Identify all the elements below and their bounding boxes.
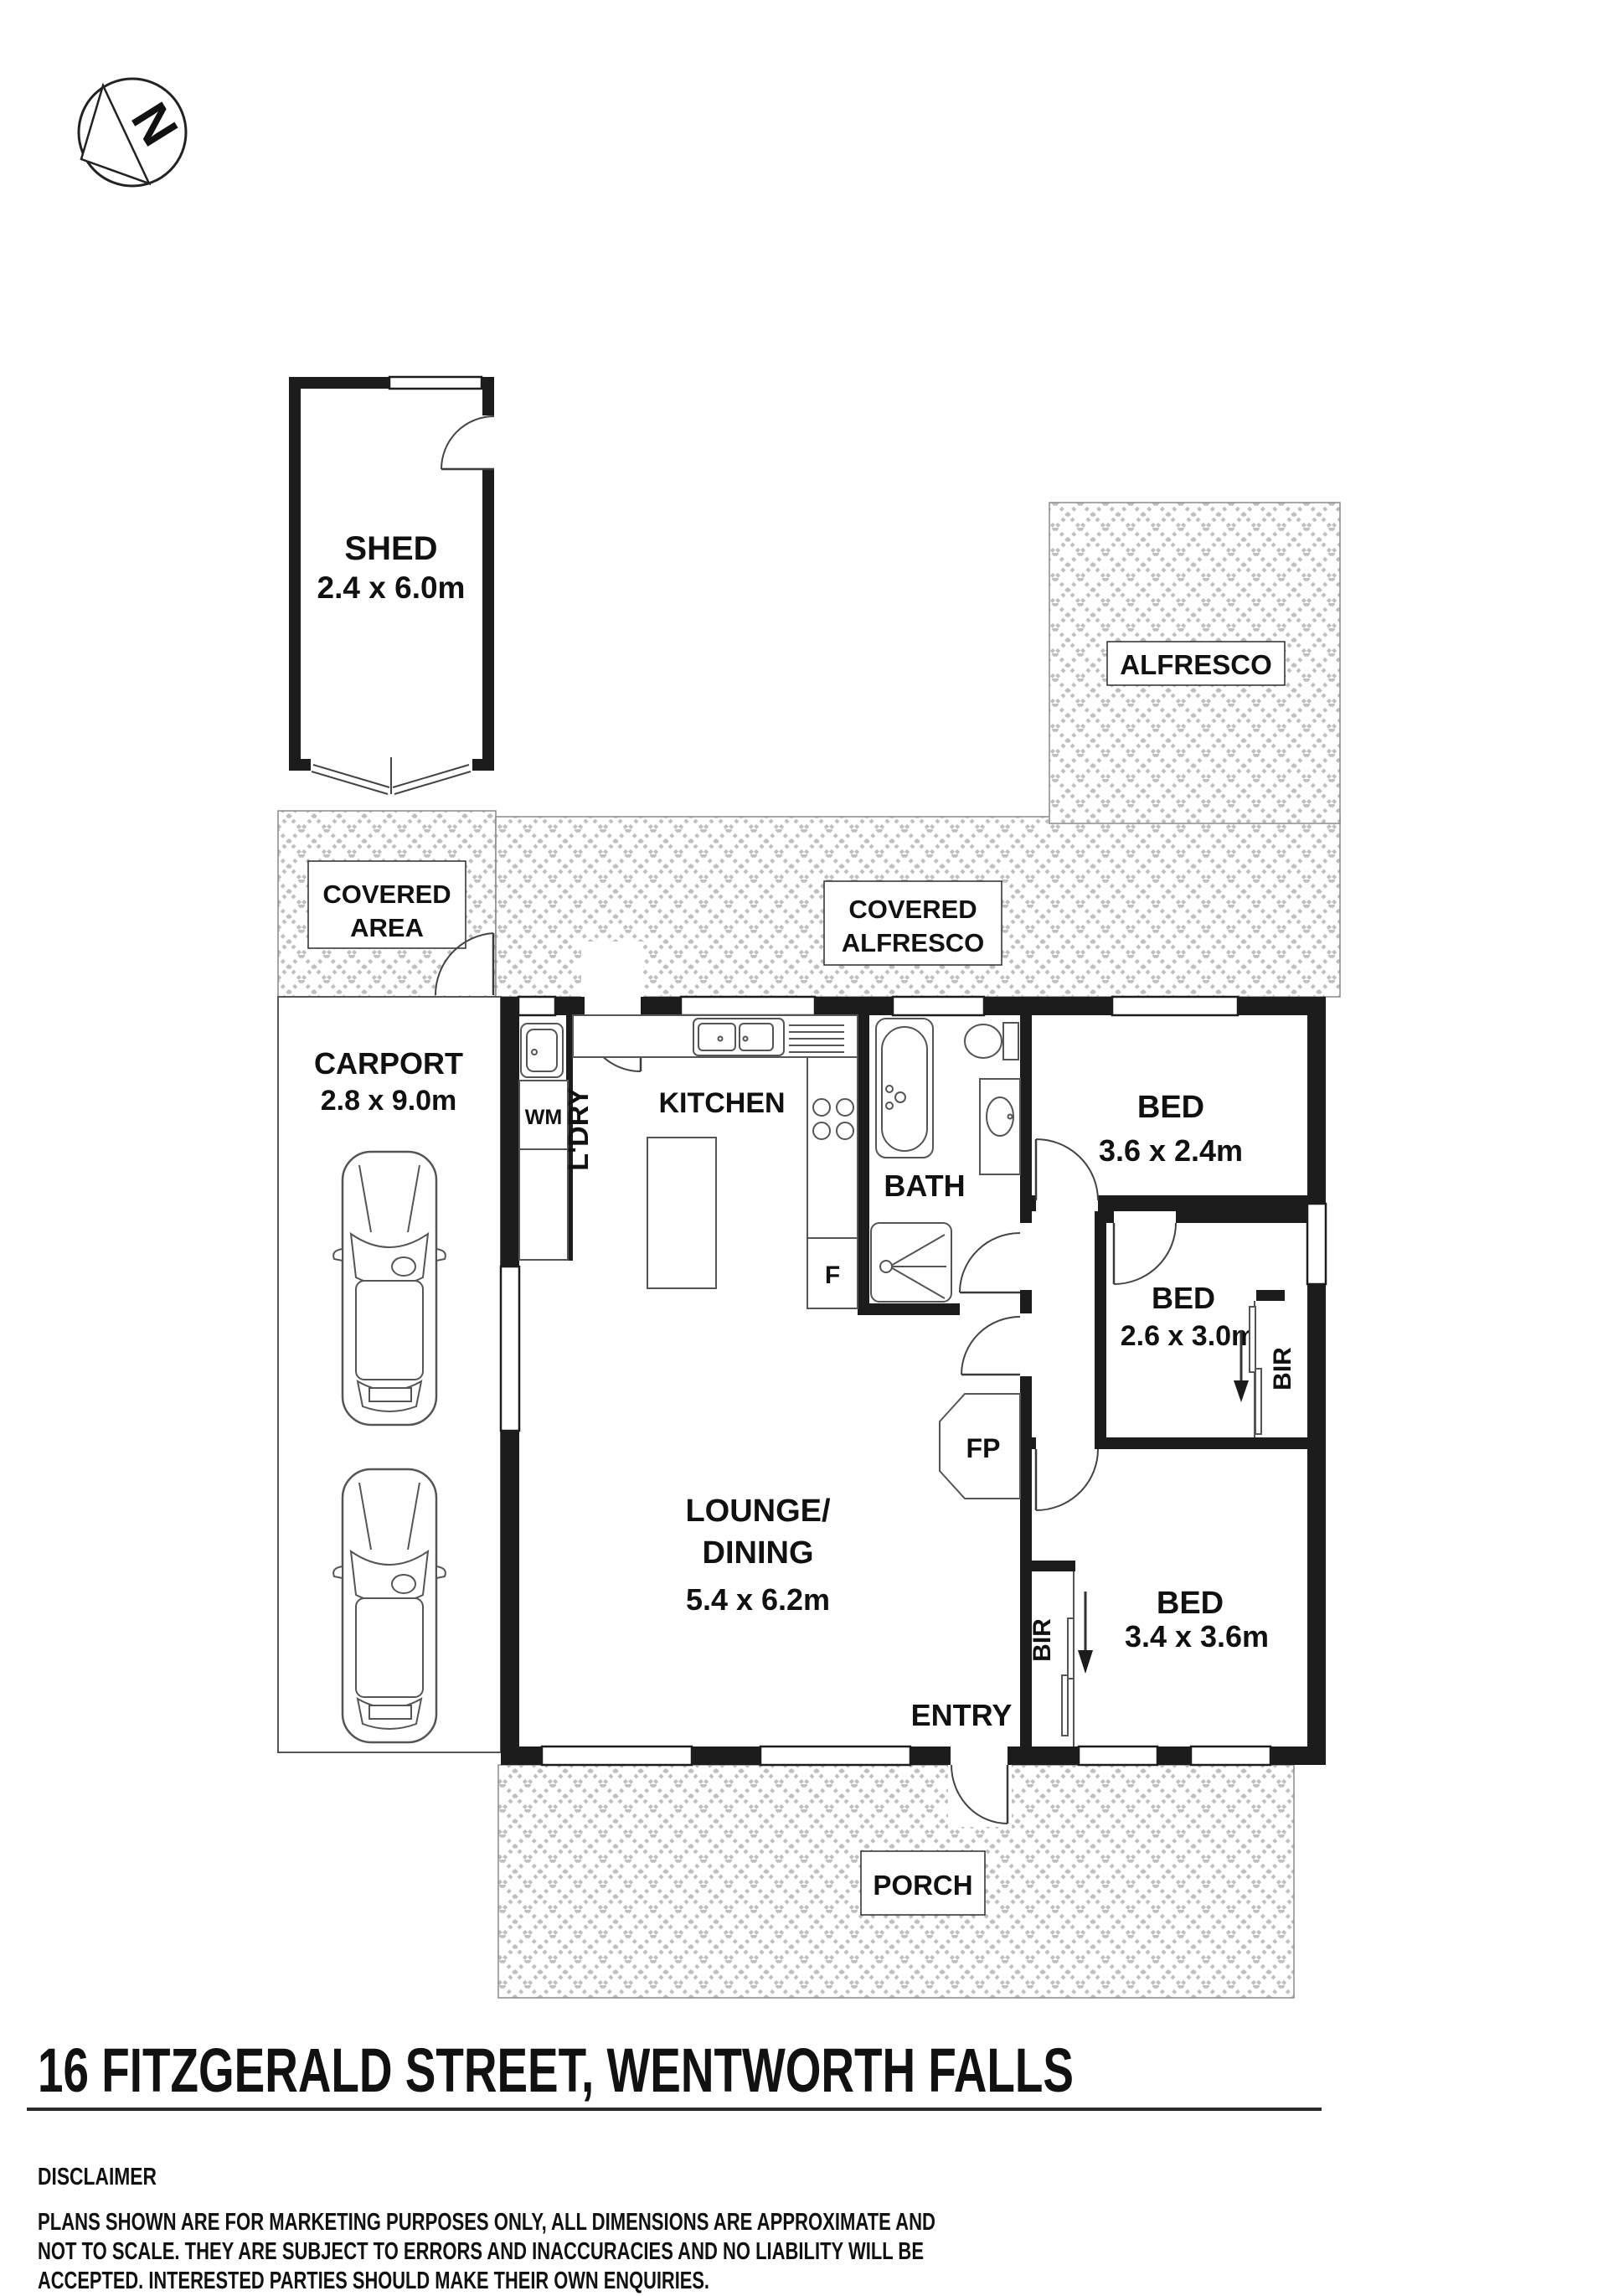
disclaimer-line-2: NOT TO SCALE. THEY ARE SUBJECT TO ERRORS… xyxy=(38,2238,924,2265)
svg-text:ALFRESCO: ALFRESCO xyxy=(842,928,985,957)
north-compass: N xyxy=(79,79,188,186)
kitchen-island xyxy=(647,1138,716,1288)
shed-double-doors xyxy=(312,757,471,794)
lounge-front-window-2 xyxy=(760,1747,910,1765)
bed2-dims: 2.6 x 3.0m xyxy=(1121,1320,1257,1352)
laundry-window xyxy=(518,997,555,1015)
kitchen-label: KITCHEN xyxy=(658,1087,785,1119)
svg-text:COVERED: COVERED xyxy=(322,880,451,909)
carport-dims: 2.8 x 9.0m xyxy=(321,1085,457,1117)
room-bed3: BED 3.4 x 3.6m BIR xyxy=(1028,1571,1269,1747)
bath-south-wall xyxy=(858,1303,960,1315)
bed3-bir-label: BIR xyxy=(1028,1618,1056,1662)
lounge-label-2: DINING xyxy=(703,1535,814,1571)
porch-label: PORCH xyxy=(861,1851,985,1915)
footer: 16 FITZGERALD STREET, WENTWORTH FALLS DI… xyxy=(27,2035,1322,2294)
room-lounge: LOUNGE/ DINING 5.4 x 6.2m ENTRY FP xyxy=(685,1394,1020,1732)
kitchen-bench-right xyxy=(807,1057,858,1238)
shed-window xyxy=(389,377,482,389)
bed2-door-arc xyxy=(1114,1223,1176,1284)
hall-door-arc xyxy=(961,1317,1020,1375)
svg-text:COVERED: COVERED xyxy=(848,895,977,924)
shed-label: SHED xyxy=(344,530,437,567)
bed2-label: BED xyxy=(1152,1281,1215,1315)
bed3-door-arc xyxy=(1036,1449,1098,1510)
car-bottom xyxy=(333,1469,446,1742)
bed1-label: BED xyxy=(1137,1090,1204,1125)
bed1-door-arc xyxy=(1036,1139,1098,1200)
room-shed: SHED 2.4 x 6.0m xyxy=(289,377,494,794)
bed3-front-window-1 xyxy=(1079,1747,1157,1765)
address-title: 16 FITZGERALD STREET, WENTWORTH FALLS xyxy=(38,2035,1074,2105)
bath-label: BATH xyxy=(884,1169,965,1203)
bath-window xyxy=(893,997,984,1015)
floorplan-page: N SHED 2.4 x 6.0m COVERED AREA xyxy=(0,0,1608,2296)
lounge-front-window-1 xyxy=(542,1747,692,1765)
bed1-window xyxy=(1112,997,1238,1015)
shed-dims: 2.4 x 6.0m xyxy=(317,570,466,605)
lounge-west-window xyxy=(501,1267,519,1431)
room-kitchen: KITCHEN F xyxy=(573,1015,858,1308)
disclaimer-line-3: ACCEPTED. INTERESTED PARTIES SHOULD MAKE… xyxy=(38,2268,709,2294)
svg-text:ALFRESCO: ALFRESCO xyxy=(1120,649,1272,680)
bed3-front-window-2 xyxy=(1191,1747,1270,1765)
fireplace-label: FP xyxy=(966,1433,1001,1463)
bath-door-arc xyxy=(960,1233,1020,1292)
laundry-cabinet xyxy=(519,1149,568,1260)
washing-machine-label: WM xyxy=(525,1106,562,1129)
disclaimer-line-1: PLANS SHOWN ARE FOR MARKETING PURPOSES O… xyxy=(38,2209,935,2236)
room-carport: CARPORT 2.8 x 9.0m xyxy=(278,997,501,1752)
vanity xyxy=(980,1079,1020,1174)
floorplan-svg: N SHED 2.4 x 6.0m COVERED AREA xyxy=(0,0,1608,2296)
fireplace: FP xyxy=(940,1394,1020,1499)
bed2-west-wall xyxy=(1095,1211,1106,1449)
shower xyxy=(871,1223,951,1302)
car-top xyxy=(333,1152,446,1425)
lounge-dims: 5.4 x 6.2m xyxy=(686,1582,830,1617)
room-bath: BATH xyxy=(871,1019,1020,1302)
kitchen-bath-wall xyxy=(858,1015,869,1315)
fridge-label: F xyxy=(825,1262,840,1289)
kitchen-window xyxy=(681,997,815,1015)
bed1-dims: 3.6 x 2.4m xyxy=(1099,1133,1243,1168)
lounge-label-1: LOUNGE/ xyxy=(685,1494,831,1529)
room-bed1: BED 3.6 x 2.4m xyxy=(1099,1090,1243,1168)
room-laundry: WM L'DRY xyxy=(519,1024,595,1260)
bed2-bir-label: BIR xyxy=(1269,1347,1296,1390)
room-bed2: BED 2.6 x 3.0m BIR xyxy=(1121,1281,1296,1437)
toilet xyxy=(965,1023,1018,1060)
bed2-east-window xyxy=(1307,1204,1326,1284)
covered-area-label: COVERED AREA xyxy=(308,861,466,948)
carport-label: CARPORT xyxy=(314,1046,463,1081)
alfresco-label: ALFRESCO xyxy=(1107,642,1285,685)
svg-text:AREA: AREA xyxy=(350,913,424,942)
disclaimer-heading: DISCLAIMER xyxy=(38,2164,157,2190)
bed3-label: BED xyxy=(1157,1586,1224,1621)
covered-alfresco-label: COVERED ALFRESCO xyxy=(824,881,1002,965)
bed3-dims: 3.4 x 3.6m xyxy=(1125,1619,1269,1654)
bed3-bir: BIR xyxy=(1028,1571,1093,1747)
entry-label: ENTRY xyxy=(911,1698,1013,1732)
laundry-label: L'DRY xyxy=(563,1087,595,1171)
svg-text:PORCH: PORCH xyxy=(873,1870,972,1901)
title-rule xyxy=(27,2108,1322,2111)
